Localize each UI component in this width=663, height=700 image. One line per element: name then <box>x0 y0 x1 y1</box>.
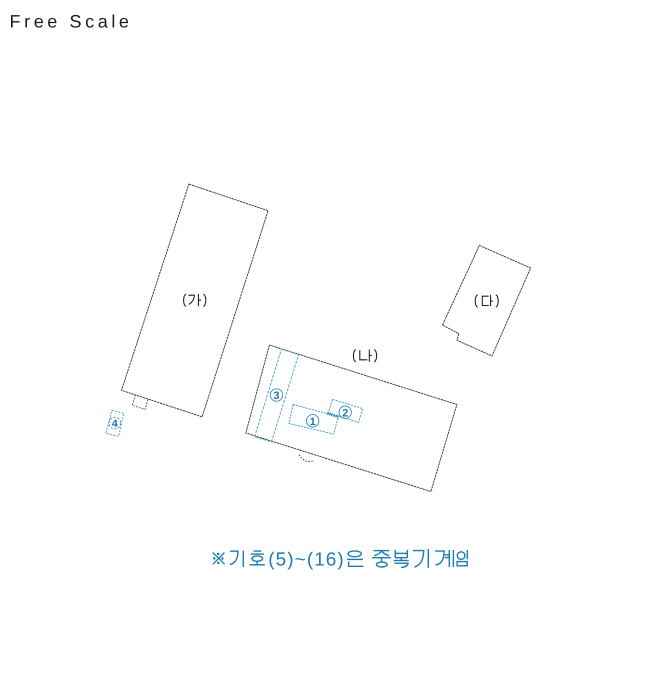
svg-text:4: 4 <box>112 418 118 430</box>
svg-text:3: 3 <box>273 390 279 402</box>
svg-text:(5)~(16): (5)~(16) <box>268 550 345 571</box>
svg-text:Free Scale: Free Scale <box>10 12 133 32</box>
svg-text:1: 1 <box>310 416 316 428</box>
svg-text:2: 2 <box>342 407 348 419</box>
